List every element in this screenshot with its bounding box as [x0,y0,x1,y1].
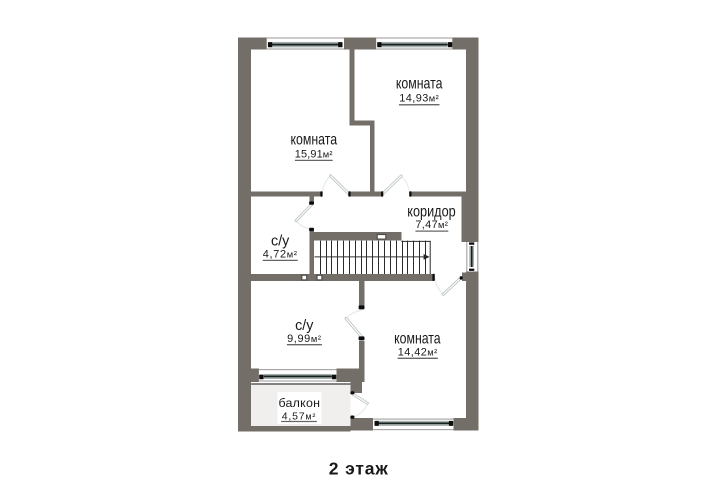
svg-text:комната: комната [396,76,443,93]
svg-text:балкон: балкон [278,396,320,410]
svg-text:с/у: с/у [271,234,290,250]
svg-text:комната: комната [394,331,441,348]
svg-text:9,99м²: 9,99м² [287,333,322,345]
svg-text:коридор: коридор [407,204,455,221]
svg-text:14,93м²: 14,93м² [399,93,439,105]
svg-text:2 этаж: 2 этаж [329,458,389,478]
svg-text:4,72м²: 4,72м² [263,249,298,261]
svg-text:с/у: с/у [295,318,314,334]
svg-text:15,91м²: 15,91м² [295,148,333,160]
svg-text:14,42м²: 14,42м² [398,347,438,359]
svg-text:комната: комната [290,132,337,149]
svg-text:7,47м²: 7,47м² [415,219,448,231]
svg-text:4,57м²: 4,57м² [282,411,316,423]
